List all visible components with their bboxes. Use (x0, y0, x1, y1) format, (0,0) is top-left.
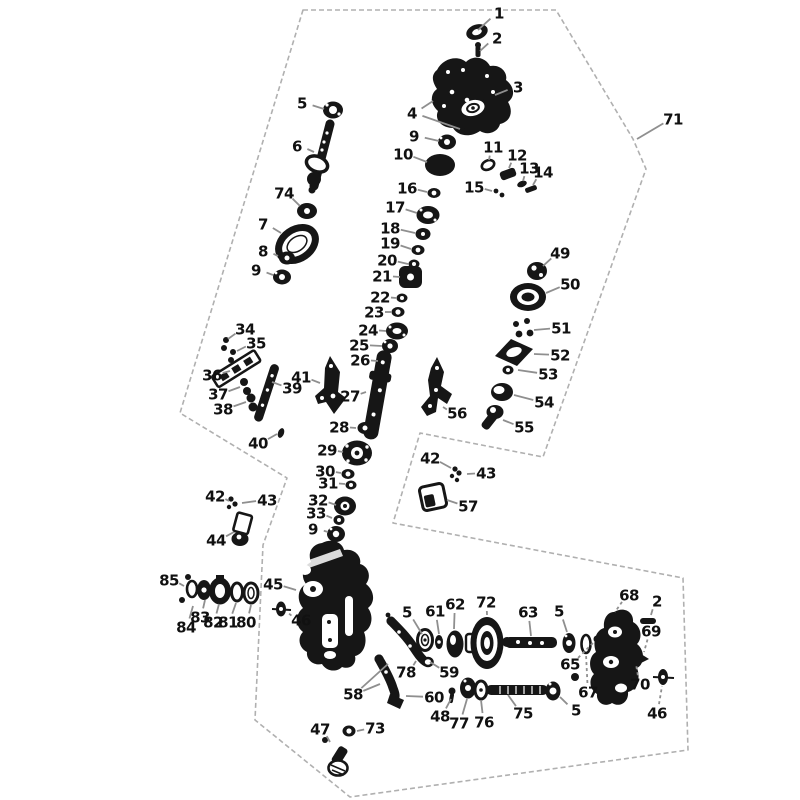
part-40-pin (276, 427, 285, 438)
part-number-46: 46 (647, 705, 667, 723)
part-84-washer (187, 581, 197, 597)
part-number-5: 5 (402, 604, 412, 622)
callout-11: 11 (483, 139, 503, 161)
part-72-ring-gear (466, 617, 504, 669)
part-number-43: 43 (476, 465, 496, 483)
leader-line-15 (485, 189, 492, 191)
part-2-bolt (475, 42, 481, 57)
part-80-ring (244, 583, 258, 603)
part-31 (346, 481, 357, 490)
part-44-bracket (232, 512, 253, 546)
part-number-55: 55 (514, 419, 534, 437)
part-number-7: 7 (258, 216, 268, 234)
leader-line-50 (546, 287, 560, 293)
callout-9: 9 (409, 128, 439, 146)
part-number-35: 35 (246, 335, 266, 353)
part-39-rod (253, 363, 280, 423)
callout-45: 45 (263, 576, 296, 594)
part-38-balls (247, 394, 258, 412)
part-42-balls-right (450, 466, 462, 482)
part-24-gear (386, 323, 408, 340)
part-61-spacer (435, 635, 443, 649)
part-number-70: 70 (630, 676, 650, 694)
part-21 (399, 266, 422, 288)
callout-42: 42 (205, 488, 229, 506)
part-number-59: 59 (439, 664, 459, 682)
part-9-gear-top (438, 135, 456, 150)
part-51-balls (513, 318, 533, 337)
part-number-40: 40 (248, 435, 268, 453)
leader-line-55 (503, 420, 514, 424)
part-52-plate (495, 339, 533, 366)
callout-74: 74 (274, 185, 300, 207)
part-number-80: 80 (236, 614, 256, 632)
leader-line-19 (401, 245, 411, 249)
leader-line-29 (338, 451, 343, 452)
callout-60: 60 (406, 689, 444, 707)
diagram-canvas: 1234569101112131415167478917181920212223… (0, 0, 800, 800)
part-45-case (297, 541, 373, 671)
leader-line-43 (242, 501, 256, 503)
leader-line-76 (481, 700, 483, 713)
callout-49: 49 (543, 245, 570, 267)
callout-80: 80 (236, 605, 256, 632)
part-number-81: 81 (218, 614, 238, 632)
part-29-gear (342, 441, 372, 466)
leader-line-77 (462, 699, 467, 714)
part-82-gear (209, 575, 231, 605)
callout-28: 28 (329, 419, 356, 437)
part-number-5: 5 (554, 603, 564, 621)
leader-line-63 (529, 621, 531, 636)
callout-41: 41 (291, 369, 320, 387)
callout-8: 8 (258, 243, 278, 261)
part-number-1: 1 (494, 5, 504, 23)
callout-71: 71 (637, 111, 683, 140)
part-number-5: 5 (297, 95, 307, 113)
leader-line-6 (307, 149, 314, 152)
callout-10: 10 (393, 146, 427, 164)
callout-21: 21 (372, 268, 400, 286)
part-5-bearing-right (563, 633, 576, 653)
leader-line-5 (313, 105, 324, 109)
callout-54: 54 (514, 394, 554, 412)
leader-line-5 (563, 619, 567, 632)
part-9-gear-left (273, 270, 291, 285)
part-5-bearing (323, 102, 343, 119)
part-number-42: 42 (205, 488, 225, 506)
part-number-46: 46 (291, 612, 311, 630)
part-number-43: 43 (257, 492, 277, 510)
part-5-bearing-bottom-right (546, 682, 561, 701)
leader-line-41 (311, 380, 320, 383)
part-number-17: 17 (385, 199, 405, 217)
part-number-5: 5 (571, 702, 581, 720)
part-number-27: 27 (340, 388, 360, 406)
callout-42: 42 (420, 450, 451, 469)
callout-17: 17 (385, 199, 417, 217)
part-number-26: 26 (350, 352, 370, 370)
part-37-balls (240, 378, 251, 395)
leader-line-4 (422, 101, 433, 109)
leader-line-37 (228, 387, 240, 391)
callout-51: 51 (534, 320, 571, 338)
part-32-gear (334, 497, 356, 516)
callout-40: 40 (248, 434, 277, 453)
leader-line-27 (361, 392, 366, 394)
callout-43: 43 (467, 465, 496, 483)
part-10-disc (425, 154, 455, 176)
part-number-56: 56 (447, 405, 467, 423)
part-number-38: 38 (213, 401, 233, 419)
callout-14: 14 (533, 164, 553, 186)
part-number-23: 23 (364, 304, 384, 322)
leader-line-9 (425, 138, 439, 141)
callout-5: 5 (297, 95, 324, 113)
part-number-84: 84 (176, 619, 196, 637)
part-number-3: 3 (513, 79, 523, 97)
leader-line-61 (437, 620, 439, 634)
part-11 (480, 158, 496, 172)
part-number-65: 65 (560, 656, 580, 674)
part-number-2: 2 (652, 593, 662, 611)
part-number-52: 52 (550, 347, 570, 365)
leader-line-2 (480, 43, 488, 51)
leader-line-45 (284, 586, 296, 590)
part-number-2: 2 (492, 30, 502, 48)
part-number-50: 50 (560, 276, 580, 294)
part-46-bolt-left (272, 602, 291, 617)
part-34-balls (221, 337, 229, 351)
callout-43: 43 (242, 492, 277, 510)
leader-line-53 (518, 370, 537, 373)
callout-15: 15 (464, 179, 492, 197)
part-number-71: 71 (663, 111, 683, 129)
part-number-28: 28 (329, 419, 349, 437)
part-30 (342, 469, 355, 479)
part-number-61: 61 (425, 603, 445, 621)
callout-85: 85 (159, 572, 184, 590)
part-number-69: 69 (641, 623, 661, 641)
part-46-bolt-right (653, 669, 674, 685)
leader-line-25 (370, 345, 382, 346)
callout-69: 69 (641, 623, 661, 653)
part-62-gear (447, 631, 464, 658)
part-12 (499, 167, 517, 181)
part-50-bearing (510, 283, 546, 311)
callout-76: 76 (474, 700, 494, 732)
leader-line-42 (440, 462, 451, 468)
part-55-bolt (480, 405, 503, 431)
leader-line-18 (401, 230, 415, 233)
part-number-19: 19 (380, 235, 400, 253)
part-number-15: 15 (464, 179, 484, 197)
part-number-54: 54 (534, 394, 554, 412)
part-number-4: 4 (407, 105, 417, 123)
callout-16: 16 (397, 180, 427, 198)
leader-line-52 (534, 354, 549, 355)
part-73-washer (343, 726, 356, 737)
part-23 (392, 307, 405, 317)
part-1-seal (464, 21, 490, 42)
callout-2: 2 (651, 593, 662, 616)
leader-line-5 (413, 619, 422, 634)
part-83-gear (197, 580, 211, 600)
part-67-shim (582, 635, 591, 653)
leader-line-33 (326, 516, 332, 518)
callout-46: 46 (287, 612, 311, 630)
callout-38: 38 (213, 401, 246, 419)
callout-1: 1 (478, 5, 504, 31)
part-number-51: 51 (551, 320, 571, 338)
callout-68: 68 (615, 587, 639, 613)
leader-line-67 (586, 654, 587, 683)
part-53 (503, 366, 514, 375)
leader-line-38 (234, 402, 246, 406)
part-9-gear-mid (327, 526, 345, 542)
part-63-countershaft (502, 637, 557, 648)
part-number-53: 53 (538, 366, 558, 384)
callout-81: 81 (218, 603, 238, 632)
part-number-47: 47 (310, 721, 330, 739)
part-number-85: 85 (159, 572, 179, 590)
leader-line-5 (560, 697, 567, 704)
part-number-31: 31 (318, 475, 338, 493)
leader-line-9 (267, 273, 273, 275)
callout-55: 55 (503, 419, 534, 437)
part-57-retainer (419, 483, 447, 511)
part-number-11: 11 (483, 139, 503, 157)
part-33 (334, 515, 345, 525)
leader-line-57 (447, 500, 457, 504)
part-47-plug (322, 737, 349, 776)
part-5-bearing-bottom-left (418, 630, 433, 651)
part-75-shaft (486, 685, 548, 695)
callout-58: 58 (343, 664, 388, 704)
callout-29: 29 (317, 442, 343, 460)
callout-59: 59 (430, 662, 459, 682)
callout-53: 53 (518, 366, 558, 384)
leader-line-21 (393, 276, 400, 277)
leader-line-83 (203, 600, 205, 608)
callout-6: 6 (292, 138, 314, 156)
callout-62: 62 (445, 596, 465, 630)
part-number-67: 67 (578, 684, 598, 702)
part-number-48: 48 (430, 708, 450, 726)
part-54 (491, 383, 513, 401)
part-number-6: 6 (292, 138, 302, 156)
part-number-8: 8 (258, 243, 268, 261)
part-81-ring (232, 583, 243, 601)
part-number-10: 10 (393, 146, 413, 164)
callout-75: 75 (508, 695, 533, 723)
part-42-balls-left (227, 496, 238, 509)
callout-9: 9 (251, 262, 273, 280)
leader-line-85 (179, 583, 184, 586)
leader-line-17 (406, 209, 417, 213)
part-number-72: 72 (476, 594, 496, 612)
part-number-77: 77 (449, 715, 469, 733)
leader-line-54 (514, 395, 533, 400)
part-number-62: 62 (445, 596, 465, 614)
callout-50: 50 (546, 276, 580, 294)
leader-line-62 (454, 613, 455, 629)
callout-63: 63 (518, 604, 538, 637)
leader-line-20 (398, 262, 408, 264)
callout-31: 31 (318, 475, 345, 493)
part-number-14: 14 (533, 164, 553, 182)
part-number-68: 68 (619, 587, 639, 605)
part-number-76: 76 (474, 714, 494, 732)
callout-72: 72 (476, 594, 496, 616)
part-28 (358, 422, 373, 434)
parts-diagram: 1234569101112131415167478917181920212223… (0, 0, 800, 800)
part-number-41: 41 (291, 369, 311, 387)
part-number-45: 45 (263, 576, 283, 594)
part-number-63: 63 (518, 604, 538, 622)
part-6-shaft (304, 124, 330, 194)
part-number-44: 44 (206, 532, 226, 550)
leader-line-26 (371, 360, 378, 361)
callout-27: 27 (340, 388, 366, 406)
leader-line-9 (324, 531, 328, 532)
part-18 (416, 228, 431, 240)
part-76-ring (475, 681, 487, 699)
leader-line-16 (418, 190, 427, 192)
part-15-balls (494, 189, 505, 198)
callout-52: 52 (534, 347, 570, 365)
leader-line-81 (232, 603, 236, 614)
leader-line-51 (534, 329, 550, 330)
callout-46: 46 (647, 686, 667, 723)
part-14 (525, 185, 538, 194)
part-number-36: 36 (202, 367, 222, 385)
callout-57: 57 (447, 498, 478, 516)
callout-44: 44 (206, 532, 234, 550)
callout-78: 78 (396, 661, 416, 682)
part-number-58: 58 (343, 686, 363, 704)
leader-line-10 (413, 157, 427, 162)
part-number-60: 60 (424, 689, 444, 707)
part-22 (397, 294, 408, 303)
part-number-57: 57 (458, 498, 478, 516)
leader-line-80 (249, 605, 251, 613)
callout-7: 7 (258, 216, 281, 234)
part-17-gear (417, 206, 440, 224)
leader-line-30 (336, 472, 341, 473)
callout-56: 56 (443, 405, 467, 423)
callout-26: 26 (350, 352, 378, 370)
part-16 (428, 188, 441, 198)
part-number-78: 78 (396, 664, 416, 682)
callout-73: 73 (357, 720, 385, 738)
parts-layer (179, 21, 674, 775)
callout-5: 5 (554, 603, 567, 633)
callout-19: 19 (380, 235, 411, 253)
leader-line-7 (273, 228, 281, 233)
part-number-49: 49 (550, 245, 570, 263)
leader-line-43 (467, 473, 475, 474)
part-13 (516, 179, 527, 188)
part-77-gear (460, 678, 476, 699)
leader-line-73 (357, 729, 364, 731)
part-number-73: 73 (365, 720, 385, 738)
leader-line-35 (237, 346, 246, 351)
part-number-42: 42 (420, 450, 440, 468)
part-8 (279, 252, 295, 265)
part-number-75: 75 (513, 705, 533, 723)
callout-77: 77 (449, 699, 469, 733)
leader-line-24 (379, 330, 386, 331)
part-number-16: 16 (397, 180, 417, 198)
leader-line-40 (268, 434, 277, 439)
callout-9: 9 (308, 521, 328, 539)
part-19 (412, 245, 425, 255)
part-number-21: 21 (372, 268, 392, 286)
part-number-74: 74 (274, 185, 294, 203)
leader-line-69 (644, 640, 648, 652)
leader-line-71 (637, 123, 663, 139)
leader-line-46 (659, 686, 662, 704)
leader-line-82 (216, 604, 219, 613)
leader-line-60 (406, 696, 423, 697)
part-number-9: 9 (308, 521, 318, 539)
part-number-9: 9 (251, 262, 261, 280)
part-number-29: 29 (317, 442, 337, 460)
part-number-9: 9 (409, 128, 419, 146)
